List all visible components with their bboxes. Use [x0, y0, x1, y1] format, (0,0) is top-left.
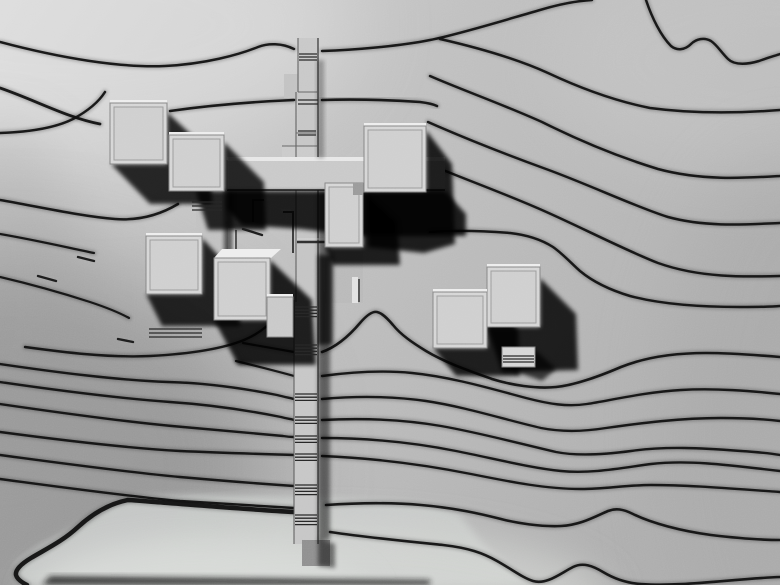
site-model-photo	[0, 0, 780, 585]
film-grain-overlay	[0, 0, 780, 585]
model-scene	[0, 0, 780, 585]
